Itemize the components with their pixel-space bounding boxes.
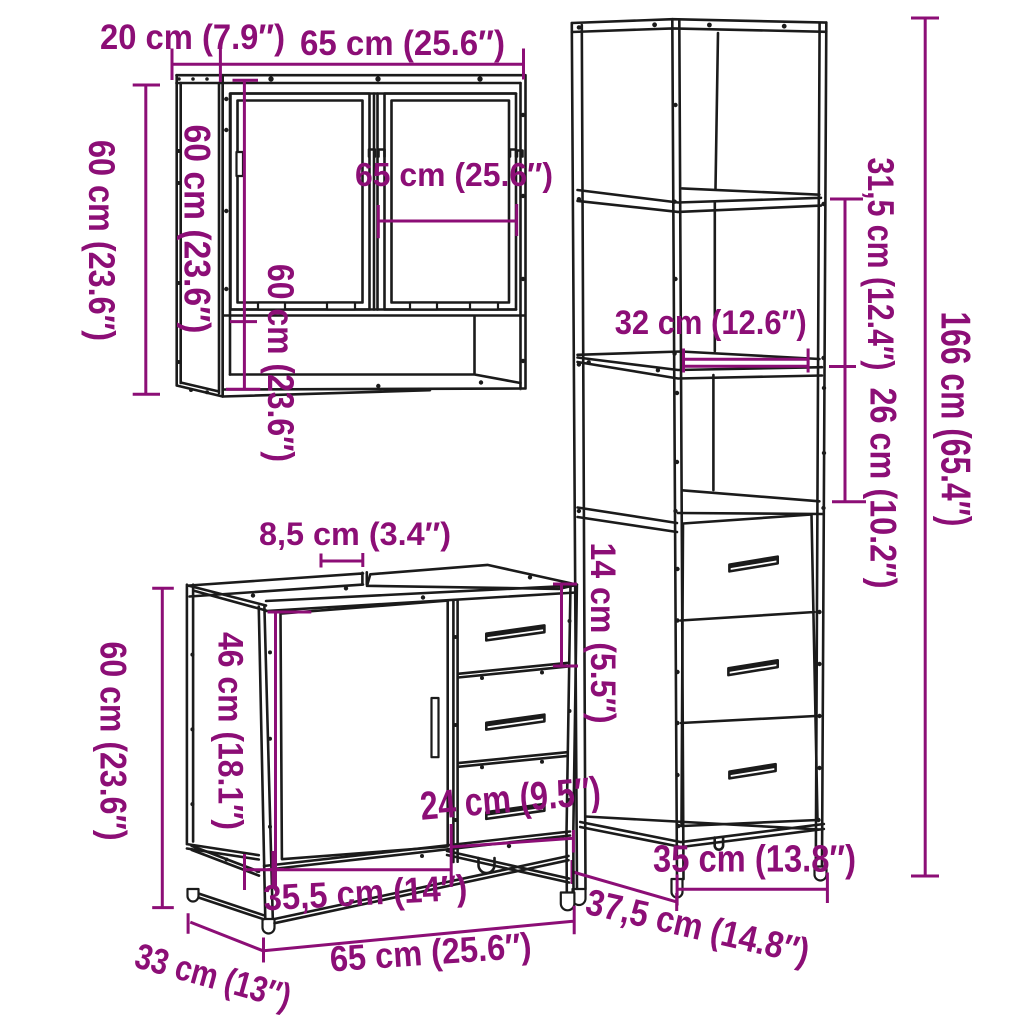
svg-text:20 cm (7.9″): 20 cm (7.9″) (100, 18, 285, 57)
svg-text:46 cm (18.1″): 46 cm (18.1″) (211, 632, 250, 830)
svg-text:166 cm (65.4″): 166 cm (65.4″) (933, 312, 980, 527)
svg-text:60 cm (23.6″): 60 cm (23.6″) (260, 264, 301, 462)
svg-text:60 cm (23.6″): 60 cm (23.6″) (93, 642, 134, 841)
svg-text:8,5 cm (3.4″): 8,5 cm (3.4″) (259, 516, 451, 552)
svg-text:65 cm (25.6″): 65 cm (25.6″) (300, 24, 505, 63)
svg-text:31,5 cm (12.4″): 31,5 cm (12.4″) (860, 158, 901, 371)
svg-text:60 cm (23.6″): 60 cm (23.6″) (177, 125, 218, 334)
svg-text:26 cm (10.2″): 26 cm (10.2″) (863, 388, 904, 589)
svg-text:35 cm (13.8″): 35 cm (13.8″) (653, 839, 856, 881)
svg-text:14 cm (5.5″): 14 cm (5.5″) (583, 543, 622, 724)
svg-text:32 cm (12.6″): 32 cm (12.6″) (615, 304, 807, 342)
svg-text:60 cm (23.6″): 60 cm (23.6″) (81, 140, 122, 341)
svg-text:65 cm (25.6″): 65 cm (25.6″) (355, 156, 553, 193)
